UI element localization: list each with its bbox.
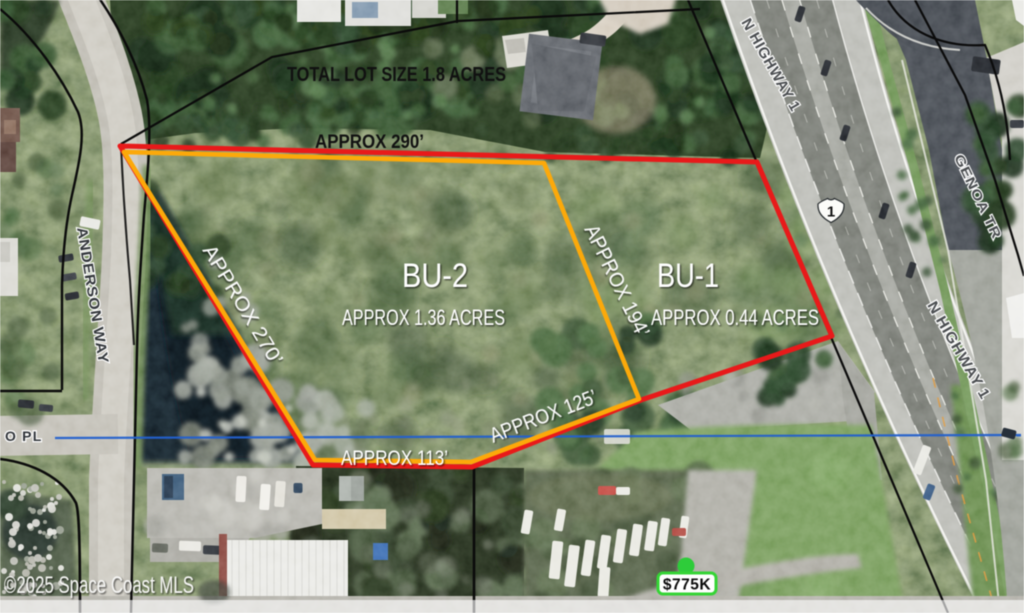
- svg-text:$775K: $775K: [663, 577, 711, 594]
- svg-text:©2025 Space Coast MLS: ©2025 Space Coast MLS: [4, 572, 194, 599]
- svg-text:1: 1: [827, 204, 835, 221]
- svg-text:BU-1: BU-1: [657, 257, 719, 295]
- svg-text:TOTAL LOT SIZE 1.8 ACRES: TOTAL LOT SIZE 1.8 ACRES: [287, 64, 506, 86]
- svg-text:O PL: O PL: [5, 428, 42, 444]
- svg-text:APPROX 1.36 ACRES: APPROX 1.36 ACRES: [342, 305, 505, 330]
- svg-text:APPROX 0.44 ACRES: APPROX 0.44 ACRES: [651, 305, 819, 330]
- svg-text:APPROX 113’: APPROX 113’: [341, 447, 448, 470]
- svg-text:APPROX 290’: APPROX 290’: [315, 132, 424, 153]
- svg-text:BU-2: BU-2: [402, 257, 468, 295]
